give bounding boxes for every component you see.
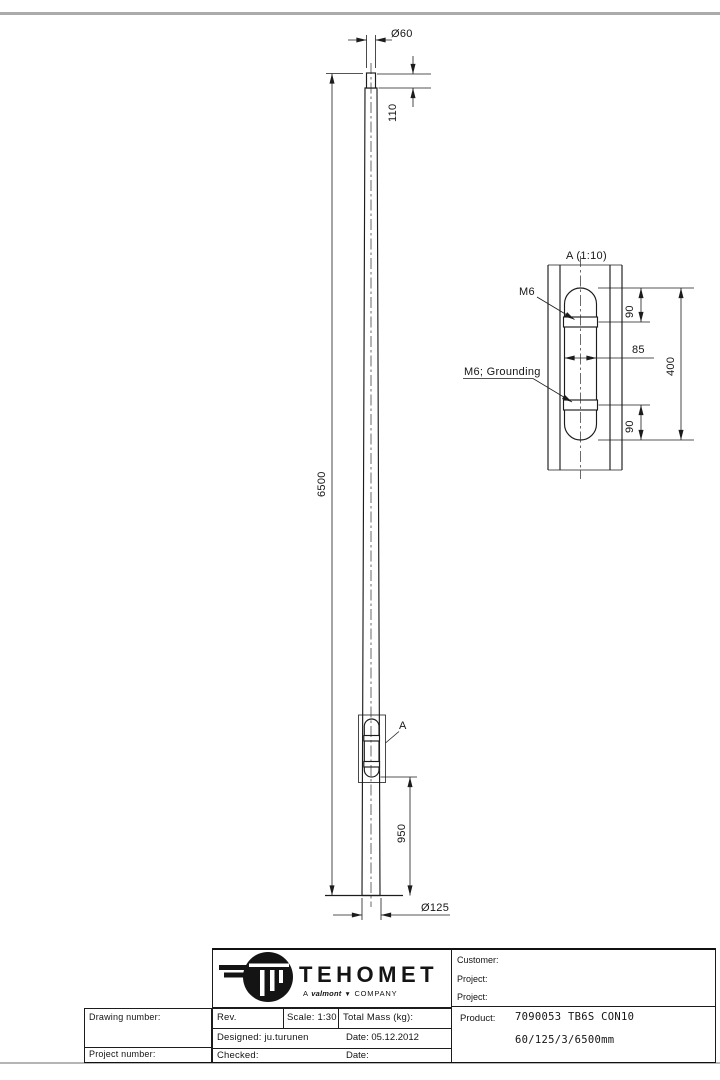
pole-technical-drawing: Ø60 110 6500 950 <box>0 0 720 945</box>
dim-spigot-length: 110 <box>377 56 431 122</box>
tagline-a: A <box>303 989 308 998</box>
dim-door-height: 400 <box>665 288 681 440</box>
dim-label-door-to-base: 950 <box>396 824 408 843</box>
dim-label-base-diameter: Ø125 <box>421 902 449 914</box>
tagline-valmont: valmont <box>311 989 341 998</box>
checked-row: Checked: Date: <box>212 1048 452 1063</box>
grounding-callout: M6; Grounding <box>463 366 572 402</box>
customer-section: Customer: Project: Project: <box>452 948 716 1007</box>
product-code: 7090053 TB6S CON10 <box>515 1011 634 1023</box>
tagline-company: COMPANY <box>354 989 397 998</box>
detail-marker-label: A <box>399 720 407 732</box>
dim-label-bolt-bottom-offset: 90 <box>624 420 636 433</box>
rev-label: Rev. <box>217 1012 237 1023</box>
dim-label-top-diameter: Ø60 <box>391 28 413 40</box>
product-section: Product: 7090053 TB6S CON10 60/125/3/650… <box>452 1007 716 1063</box>
checked-date-label: Date: <box>346 1050 369 1061</box>
door-bolt-tab-bottom <box>364 762 380 768</box>
drawing-sheet: Ø60 110 6500 950 <box>0 0 720 1080</box>
dim-label-total-length: 6500 <box>316 471 328 497</box>
dim-label-door-height: 400 <box>665 357 677 376</box>
project-number-box: Project number: <box>84 1048 212 1063</box>
scale-cell: Scale: 1:30 <box>283 1008 338 1028</box>
project-number-label: Project number: <box>89 1049 156 1059</box>
checked-label: Checked: <box>217 1050 259 1061</box>
title-block: TEHOMET A valmont ▼ COMPANY Customer: Pr… <box>84 948 716 1063</box>
total-mass-cell: Total Mass (kg): <box>338 1008 452 1028</box>
detail-callout-leader <box>386 732 400 744</box>
bolt-callout-label: M6 <box>519 286 535 298</box>
detail-view-title: A (1:10) <box>566 250 607 262</box>
designed-row: Designed: ju.turunen Date: 05.12.2012 <box>212 1028 452 1048</box>
dim-door-to-base: 950 <box>381 777 418 896</box>
grounding-callout-label: M6; Grounding <box>464 366 541 378</box>
drawing-number-box: Drawing number: <box>84 1008 212 1048</box>
total-mass-label: Total Mass (kg): <box>343 1012 413 1023</box>
product-spec: 60/125/3/6500mm <box>515 1034 614 1046</box>
main-view: Ø60 110 6500 950 <box>316 28 450 920</box>
dim-label-door-width: 85 <box>632 344 645 356</box>
logo-box: TEHOMET A valmont ▼ COMPANY <box>212 948 452 1008</box>
valmont-triangle-icon: ▼ <box>344 991 351 998</box>
product-label: Product: <box>460 1013 495 1024</box>
dim-base-diameter: Ø125 <box>333 898 450 920</box>
detail-view: A (1:10) M6 M6; Grounding <box>463 250 694 479</box>
brand-tagline: A valmont ▼ COMPANY <box>303 989 397 998</box>
dim-total-length: 6500 <box>316 74 363 896</box>
project-label-2: Project: <box>457 988 488 1007</box>
rev-cell: Rev. <box>212 1008 283 1028</box>
dim-top-diameter: Ø60 <box>348 28 413 68</box>
door-slot <box>364 719 379 777</box>
drawing-number-label: Drawing number: <box>89 1012 161 1022</box>
designed-date: Date: 05.12.2012 <box>346 1032 419 1043</box>
designed-by: Designed: ju.turunen <box>217 1032 309 1043</box>
customer-label: Customer: <box>457 951 499 970</box>
door-bolt-tab-top <box>364 736 380 742</box>
dim-label-bolt-top-offset: 90 <box>624 305 636 318</box>
dim-bolt-top-offset: 90 <box>624 288 641 322</box>
project-label-1: Project: <box>457 970 488 989</box>
brand-name: TEHOMET <box>299 962 438 988</box>
scale-value: Scale: 1:30 <box>287 1012 337 1023</box>
dim-bolt-bottom-offset: 90 <box>624 405 641 440</box>
dim-label-spigot-length: 110 <box>387 104 399 122</box>
